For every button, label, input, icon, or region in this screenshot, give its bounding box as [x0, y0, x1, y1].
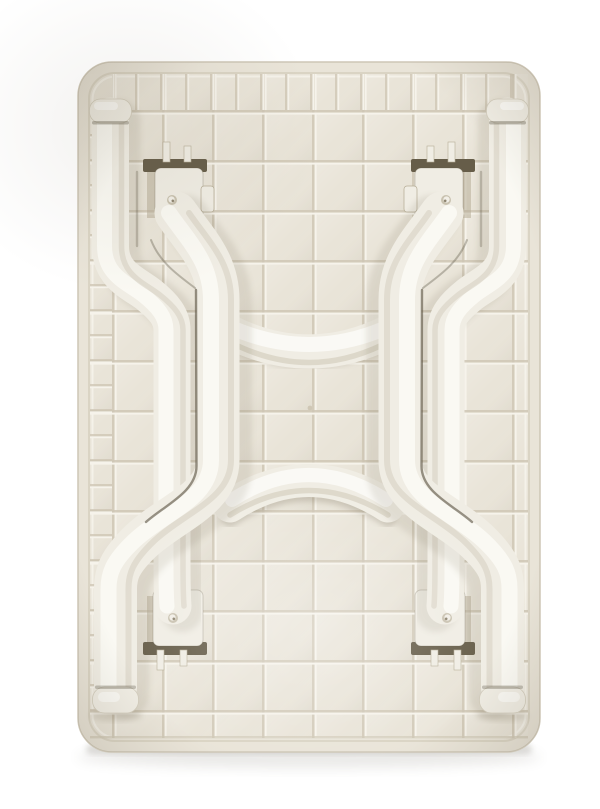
folding-table-photo: White folding table, underside view with…: [0, 0, 600, 809]
photo-stage: White folding table, underside view with…: [0, 0, 600, 809]
vignette: [78, 62, 540, 752]
lighting-overlays: [0, 0, 540, 778]
